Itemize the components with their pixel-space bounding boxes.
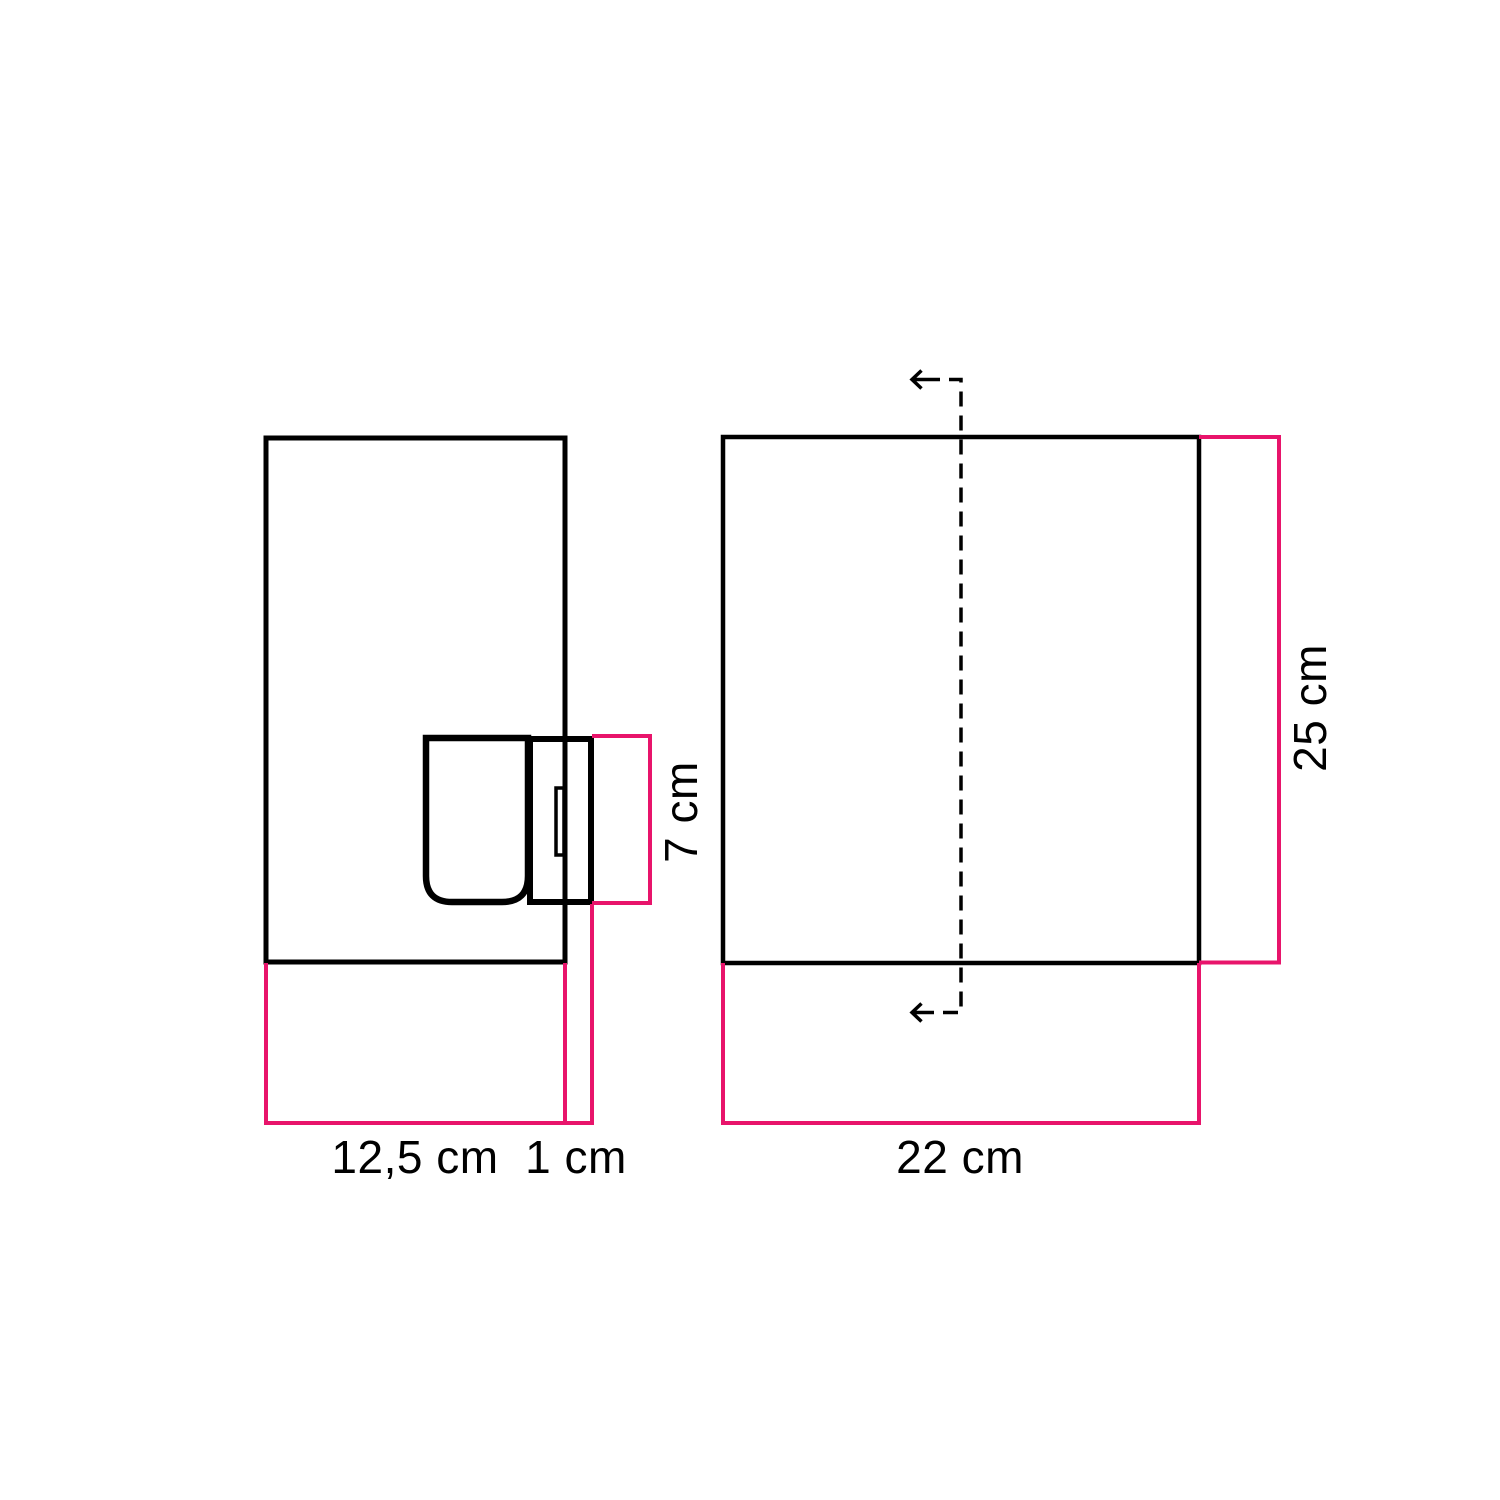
left-arrow-icon (912, 371, 925, 389)
dim-bracket-holder-height-7cm (592, 736, 650, 903)
diagram-linework (0, 0, 1500, 1500)
dim-bracket-height-25cm (1199, 437, 1279, 963)
dim-label-depth: 12,5 cm (331, 1134, 498, 1180)
shade-side-outline (266, 438, 565, 962)
dimension-diagram: 12,5 cm 1 cm 7 cm 22 cm 25 cm (0, 0, 1500, 1500)
dim-label-height: 25 cm (1287, 644, 1333, 772)
cable-slot-outline (556, 788, 564, 855)
side-view (266, 438, 591, 962)
left-arrow-icon (912, 1004, 925, 1022)
dim-bracket-width-22cm (721, 963, 1201, 1123)
center-axis-dashed-line (925, 380, 961, 1013)
dim-label-holder-height: 7 cm (658, 761, 704, 863)
wall-bracket-plate-outline (530, 739, 591, 902)
dim-label-holder-offset: 1 cm (525, 1134, 627, 1180)
dim-label-width: 22 cm (896, 1134, 1024, 1180)
front-view-dimension-lines (721, 437, 1279, 1123)
dim-lines-depth-12-5cm-and-offset-1cm (264, 904, 594, 1123)
lamp-holder-cup-outline (426, 738, 528, 902)
front-view (723, 371, 1199, 1022)
